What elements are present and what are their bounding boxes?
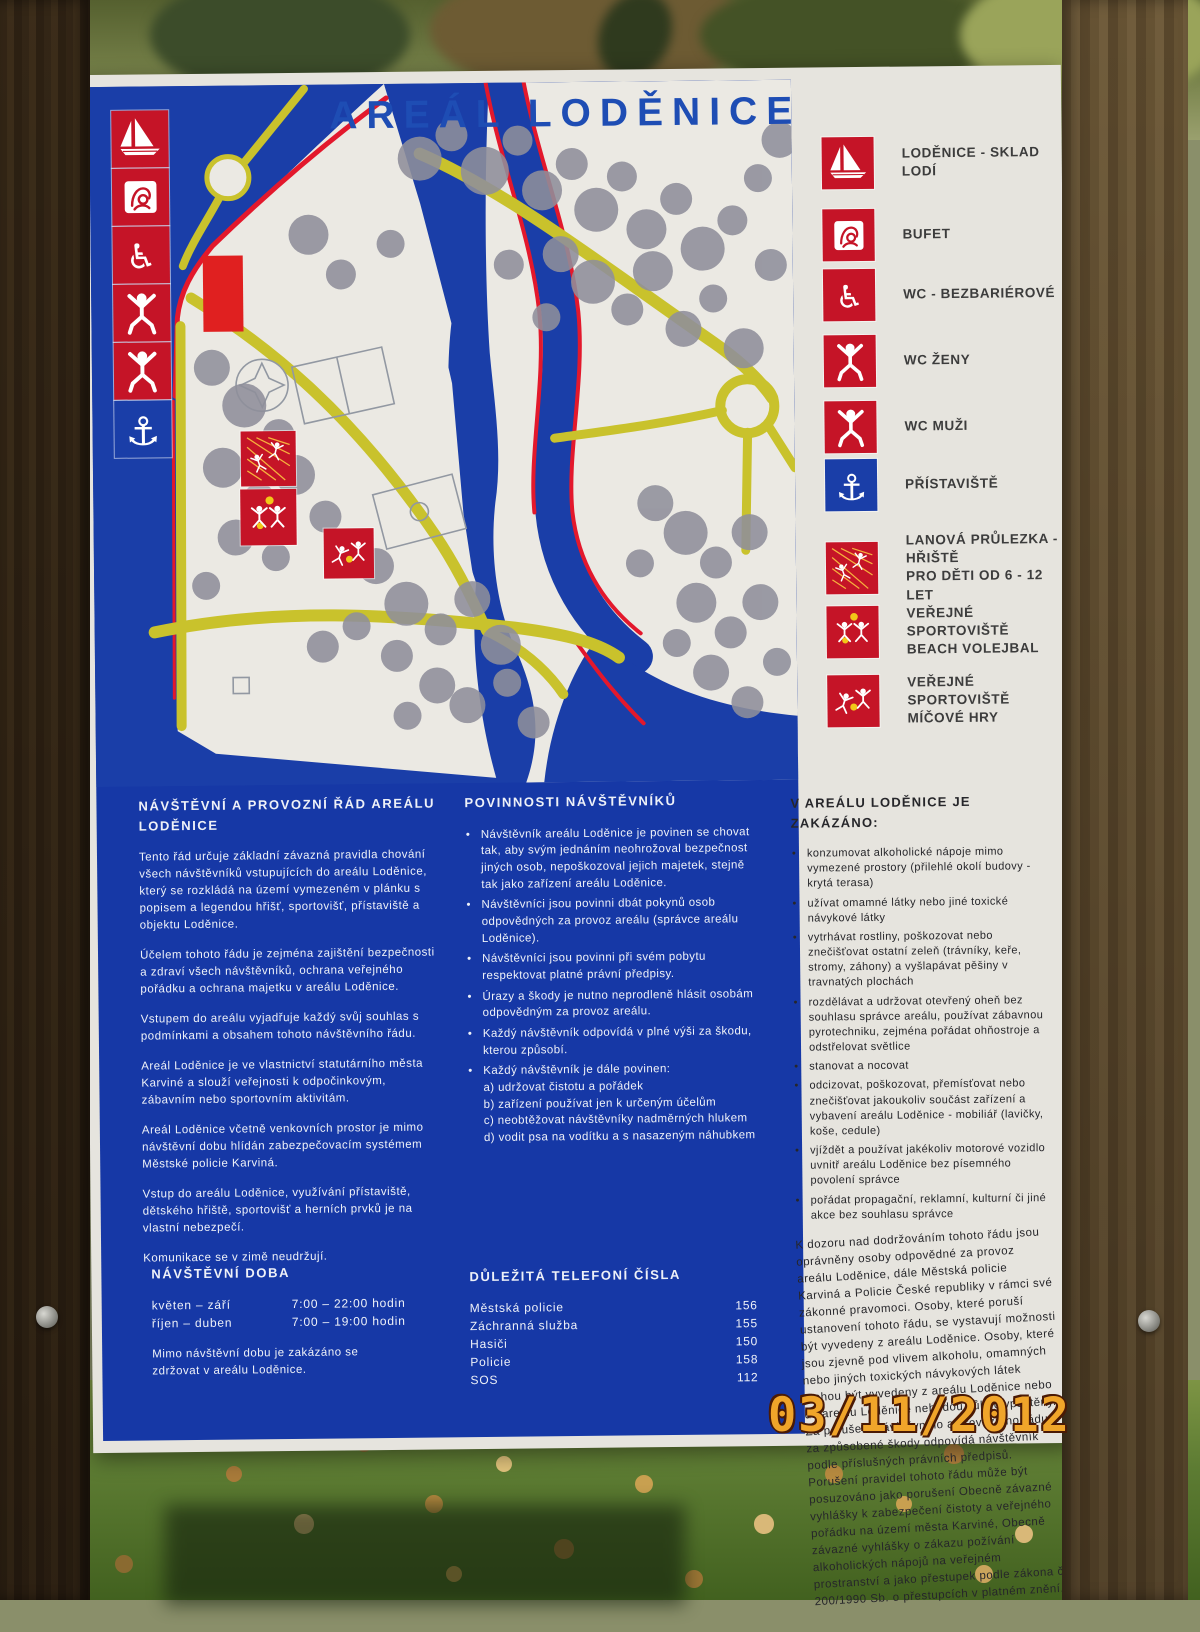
- pier-circle: [207, 156, 249, 198]
- information-sign: AREÁL LODĚNICE ♿ ⚓ LODĚNICE - SKLAD LODÍ…: [79, 65, 1075, 1453]
- prohibitions-column: V AREÁLU LODĚNICE JE ZAKÁZÁNO: konzumova…: [790, 791, 1055, 1625]
- wc-man-icon: [114, 342, 172, 400]
- rules-paragraph: Areál Loděnice je ve vlastnictví statutá…: [141, 1056, 444, 1110]
- hours-time: 7:00 – 22:00 hodin: [292, 1295, 406, 1310]
- sailboat-icon: [822, 137, 875, 190]
- phone-row: Policie158: [470, 1352, 758, 1369]
- hours-heading: NÁVŠTĚVNÍ DOBA: [151, 1261, 471, 1284]
- legend-label: LODĚNICE - SKLAD LODÍ: [902, 143, 1062, 181]
- building-marker: [203, 255, 244, 331]
- page-title: AREÁL LODĚNICE: [327, 90, 803, 139]
- sign-shadow: [165, 1505, 685, 1605]
- legend-item: WC MUŽI: [824, 400, 968, 453]
- phone-number: 156: [735, 1298, 758, 1312]
- wheelchair-icon: ♿: [823, 269, 876, 322]
- hours-time: 7:00 – 19:00 hodin: [292, 1313, 406, 1328]
- anchor-icon: ⚓: [825, 459, 878, 512]
- legend-item: LANOVÁ PRŮLEZKA - HŘIŠTĚ PRO DĚTI OD 6 -…: [826, 530, 1067, 605]
- rules-paragraph: Vstup do areálu Loděnice, využívání přís…: [142, 1184, 445, 1238]
- wooden-post-left: [0, 0, 90, 1600]
- rope-climb-icon: [826, 542, 879, 595]
- wc-woman-icon: [113, 284, 171, 342]
- rules-heading: NÁVŠTĚVNÍ A PROVOZNÍ ŘÁD AREÁLU LODĚNICE: [138, 793, 440, 835]
- legend-label: VEŘEJNÉ SPORTOVIŠTĚ BEACH VOLEJBAL: [906, 603, 1067, 659]
- rope-climb-icon: [241, 431, 297, 487]
- phone-row: SOS112: [470, 1370, 758, 1387]
- legend-label: WC ŽENY: [904, 351, 971, 370]
- legend-label: LANOVÁ PRŮLEZKA - HŘIŠTĚ PRO DĚTI OD 6 -…: [906, 530, 1067, 605]
- legend-label: PŘÍSTAVIŠTĚ: [905, 474, 998, 493]
- prohibition-item: užívat omamné látky nebo jiné toxické ná…: [807, 894, 1047, 927]
- legend-item: BUFET: [822, 208, 951, 261]
- rules-paragraph: Účelem tohoto řádu je zejména zajištění …: [140, 945, 443, 999]
- phone-name: SOS: [470, 1372, 498, 1386]
- hours-season: říjen – duben: [152, 1315, 292, 1330]
- date-stamp: 03/11/2012: [768, 1388, 1071, 1443]
- duty-item: Každý návštěvník odpovídá v plné výši za…: [483, 1023, 761, 1059]
- duty-item: Návštěvníci jsou povinni při svém pobytu…: [482, 948, 760, 984]
- rules-paragraph: Areál Loděnice včetně venkovních prostor…: [142, 1120, 445, 1174]
- prohibition-item: vytrhávat rostliny, poškozovat nebo zneč…: [808, 928, 1049, 991]
- phone-numbers: DŮLEŽITÁ TELEFONÍ ČÍSLA Městská policie1…: [469, 1264, 770, 1391]
- beach-volleyball-icon: [240, 489, 297, 546]
- prohibition-item: stanovat a nocovat: [809, 1057, 1049, 1075]
- duty-item: Návštěvník areálu Loděnice je povinen se…: [481, 824, 760, 894]
- phones-heading: DŮLEŽITÁ TELEFONÍ ČÍSLA: [469, 1264, 769, 1287]
- prohibition-item: rozdělávat a udržovat otevřený oheň bez …: [808, 993, 1049, 1056]
- ball-games-icon: [827, 675, 880, 728]
- legend-label: VEŘEJNÉ SPORTOVIŠTĚ MÍČOVÉ HRY: [907, 672, 1068, 728]
- phone-row: Hasiči150: [470, 1334, 758, 1351]
- legend-label: WC MUŽI: [904, 417, 968, 436]
- phone-number: 112: [737, 1370, 759, 1384]
- visiting-hours: NÁVŠTĚVNÍ DOBA květen – září 7:00 – 22:0…: [151, 1261, 472, 1380]
- bufet-icon: [822, 209, 875, 262]
- anchor-icon: ⚓: [114, 400, 172, 458]
- legend-item: ♿WC - BEZBARIÉROVÉ: [823, 267, 1055, 321]
- duty-item: Úrazy a škody je nutno neprodleně hlásit…: [482, 986, 760, 1022]
- map-marker-strip: ♿ ⚓: [111, 110, 172, 459]
- legend-item: ⚓PŘÍSTAVIŠTĚ: [825, 458, 999, 512]
- phone-row: Městská policie156: [470, 1298, 758, 1315]
- prohibitions-heading: V AREÁLU LODĚNICE JE ZAKÁZÁNO:: [790, 791, 1046, 833]
- phone-number: 150: [736, 1334, 759, 1348]
- phone-name: Policie: [470, 1354, 511, 1368]
- svg-text:⚓: ⚓: [835, 467, 868, 507]
- hours-note: Mimo návštěvní dobu je zakázáno se zdržo…: [152, 1343, 472, 1381]
- sailboat-icon: [111, 110, 169, 168]
- phone-name: Hasiči: [470, 1336, 508, 1350]
- legend-label: BUFET: [902, 225, 950, 244]
- duties-heading: POVINNOSTI NÁVŠTĚVNÍKŮ: [464, 790, 758, 813]
- svg-text:⚓: ⚓: [125, 410, 161, 454]
- wc-woman-icon: [824, 335, 877, 388]
- phone-number: 158: [736, 1352, 759, 1366]
- phone-number: 155: [735, 1316, 758, 1330]
- beach-volleyball-icon: [826, 606, 879, 659]
- legend-item: WC ŽENY: [824, 334, 971, 388]
- prohibition-item: vjíždět a používat jakékoliv motorové vo…: [810, 1141, 1050, 1189]
- prohibition-item: pořádat propagační, reklamní, kulturní č…: [811, 1191, 1051, 1224]
- duty-item: Každý návštěvník je dále povinen: a) udr…: [483, 1060, 762, 1146]
- wc-man-icon: [824, 401, 877, 454]
- site-map: [89, 80, 798, 787]
- prohibition-item: konzumovat alkoholické nápoje mimo vymez…: [807, 844, 1047, 892]
- bolt: [1138, 1310, 1160, 1332]
- wooden-post-right: [1062, 0, 1188, 1600]
- bufet-icon: [112, 168, 170, 226]
- legend-item: VEŘEJNÉ SPORTOVIŠTĚ MÍČOVÉ HRY: [827, 672, 1068, 729]
- wheelchair-icon: ♿: [112, 226, 170, 284]
- duty-item: Návštěvníci jsou povinni dbát pokynů oso…: [481, 894, 760, 947]
- legend-item: LODĚNICE - SKLAD LODÍ: [822, 135, 1063, 190]
- rules-paragraph: Tento řád určuje základní závazná pravid…: [139, 846, 442, 934]
- ball-games-icon: [324, 528, 375, 579]
- duties-column: POVINNOSTI NÁVŠTĚVNÍKŮ Návštěvník areálu…: [464, 790, 762, 1151]
- svg-text:♿: ♿: [126, 237, 157, 277]
- prohibition-item: odcizovat, poškozovat, přemísťovat nebo …: [809, 1076, 1050, 1139]
- legend-label: WC - BEZBARIÉROVÉ: [903, 284, 1055, 304]
- rules-column: NÁVŠTĚVNÍ A PROVOZNÍ ŘÁD AREÁLU LODĚNICE…: [138, 793, 445, 1280]
- hours-row: květen – září 7:00 – 22:00 hodin: [152, 1295, 472, 1312]
- rules-paragraph: Vstupem do areálu vyjadřuje každý svůj s…: [141, 1009, 443, 1046]
- bolt: [36, 1306, 58, 1328]
- phone-name: Záchranná služba: [470, 1318, 578, 1333]
- svg-text:♿: ♿: [835, 279, 863, 315]
- hours-season: květen – září: [152, 1297, 292, 1312]
- legend-item: VEŘEJNÉ SPORTOVIŠTĚ BEACH VOLEJBAL: [826, 603, 1067, 660]
- phone-row: Záchranná služba155: [470, 1316, 758, 1333]
- phone-name: Městská policie: [470, 1300, 564, 1315]
- hours-row: říjen – duben 7:00 – 19:00 hodin: [152, 1313, 472, 1330]
